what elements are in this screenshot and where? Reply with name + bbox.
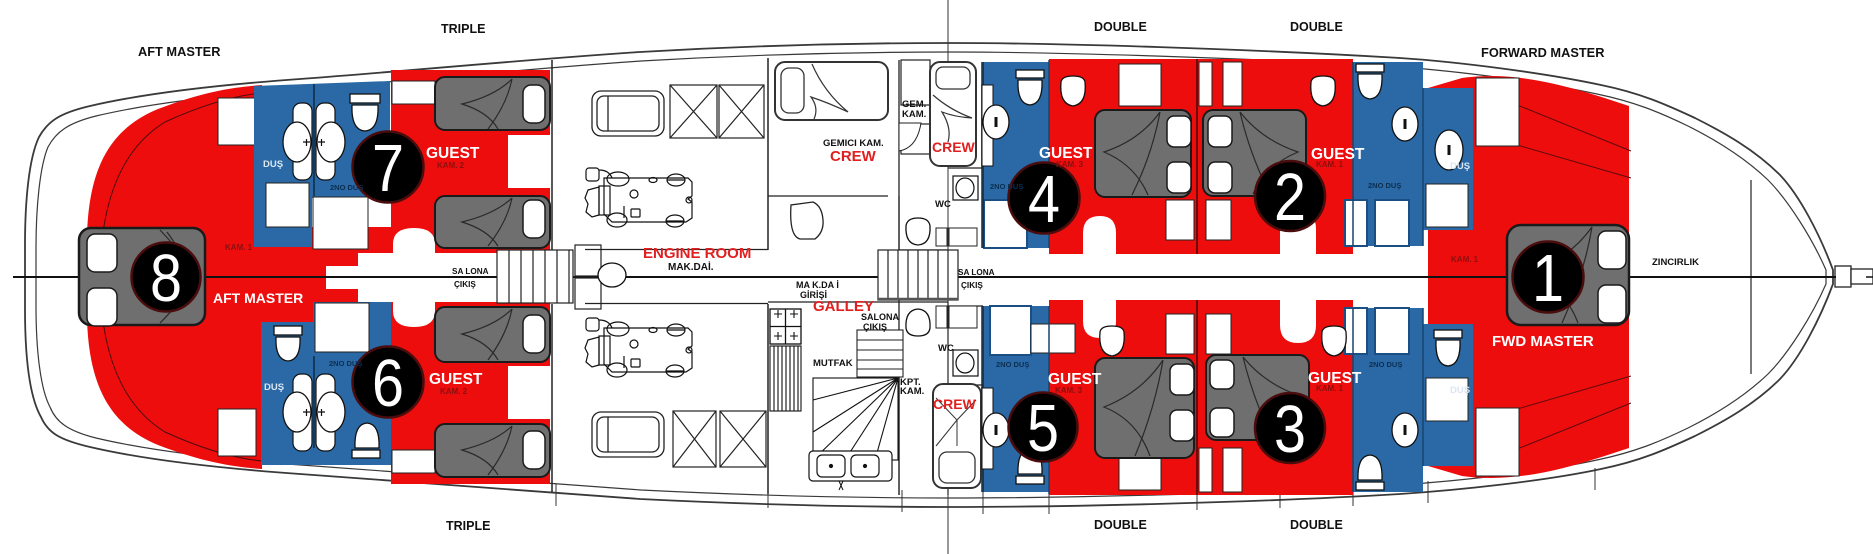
svg-text:6: 6 xyxy=(372,346,404,421)
svg-text:KAM.: KAM. xyxy=(902,109,926,120)
svg-text:2NO DUŞ: 2NO DUŞ xyxy=(990,182,1023,191)
svg-text:AFT MASTER: AFT MASTER xyxy=(138,44,220,59)
svg-text:DUŞ: DUŞ xyxy=(1450,385,1470,396)
svg-text:1: 1 xyxy=(1532,241,1564,316)
svg-text:TRIPLE: TRIPLE xyxy=(441,22,485,36)
svg-text:WC: WC xyxy=(938,343,954,354)
svg-text:SALONA: SALONA xyxy=(861,312,900,322)
svg-text:WC: WC xyxy=(935,199,951,210)
svg-text:CREW: CREW xyxy=(830,148,877,165)
svg-text:KAM. 3: KAM. 3 xyxy=(1055,386,1083,395)
svg-text:ÇIKIŞ: ÇIKIŞ xyxy=(863,322,887,332)
svg-text:ÇIKIŞ: ÇIKIŞ xyxy=(454,280,476,289)
svg-text:KAM.: KAM. xyxy=(900,386,924,397)
svg-text:CREW: CREW xyxy=(933,396,977,412)
svg-text:ENGINE ROOM: ENGINE ROOM xyxy=(643,245,751,262)
svg-text:MA K.DA İ: MA K.DA İ xyxy=(796,280,839,290)
svg-text:KAM. 2: KAM. 2 xyxy=(437,161,465,170)
svg-text:DUŞ: DUŞ xyxy=(1450,161,1470,172)
svg-text:GUEST: GUEST xyxy=(429,371,483,388)
svg-text:DOUBLE: DOUBLE xyxy=(1290,518,1343,532)
svg-text:ÇIKIŞ: ÇIKIŞ xyxy=(961,281,983,290)
svg-text:2NO DUŞ: 2NO DUŞ xyxy=(329,359,362,368)
svg-text:MUTFAK: MUTFAK xyxy=(813,358,853,369)
svg-text:TRIPLE: TRIPLE xyxy=(446,519,490,533)
svg-text:DOUBLE: DOUBLE xyxy=(1290,20,1343,34)
svg-text:DOUBLE: DOUBLE xyxy=(1094,20,1147,34)
svg-text:2NO DUŞ: 2NO DUŞ xyxy=(1369,360,1402,369)
svg-text:DUŞ: DUŞ xyxy=(264,382,284,393)
svg-text:FWD MASTER: FWD MASTER xyxy=(1492,333,1594,350)
svg-text:2NO DUŞ: 2NO DUŞ xyxy=(1368,181,1401,190)
svg-text:8: 8 xyxy=(150,241,182,316)
svg-text:ZINCIRLIK: ZINCIRLIK xyxy=(1652,257,1699,268)
svg-text:2NO DUŞ: 2NO DUŞ xyxy=(330,183,363,192)
svg-text:3: 3 xyxy=(1274,392,1306,467)
svg-text:KAM. 1: KAM. 1 xyxy=(225,243,253,252)
svg-text:FORWARD MASTER: FORWARD MASTER xyxy=(1481,45,1604,60)
svg-text:KAM. 1: KAM. 1 xyxy=(1451,255,1479,264)
svg-text:5: 5 xyxy=(1027,391,1059,466)
svg-text:KAM. 2: KAM. 2 xyxy=(440,387,468,396)
svg-text:SA LONA: SA LONA xyxy=(958,268,995,277)
svg-text:SA LONA: SA LONA xyxy=(452,267,489,276)
svg-text:7: 7 xyxy=(372,131,404,206)
svg-text:AFT MASTER: AFT MASTER xyxy=(213,290,303,306)
svg-text:2NO DUŞ: 2NO DUŞ xyxy=(996,360,1029,369)
svg-text:KAM. 3: KAM. 3 xyxy=(1056,160,1084,169)
svg-text:DOUBLE: DOUBLE xyxy=(1094,518,1147,532)
svg-text:KAM. 1: KAM. 1 xyxy=(1316,160,1344,169)
svg-text:GUEST: GUEST xyxy=(426,145,480,162)
svg-text:2: 2 xyxy=(1274,160,1306,235)
svg-text:4: 4 xyxy=(1028,162,1060,237)
svg-text:KAM. 1: KAM. 1 xyxy=(1316,384,1344,393)
svg-text:CREW: CREW xyxy=(932,139,976,155)
svg-text:MAK.DAİ.: MAK.DAİ. xyxy=(668,260,714,273)
svg-text:DUŞ: DUŞ xyxy=(263,159,283,170)
